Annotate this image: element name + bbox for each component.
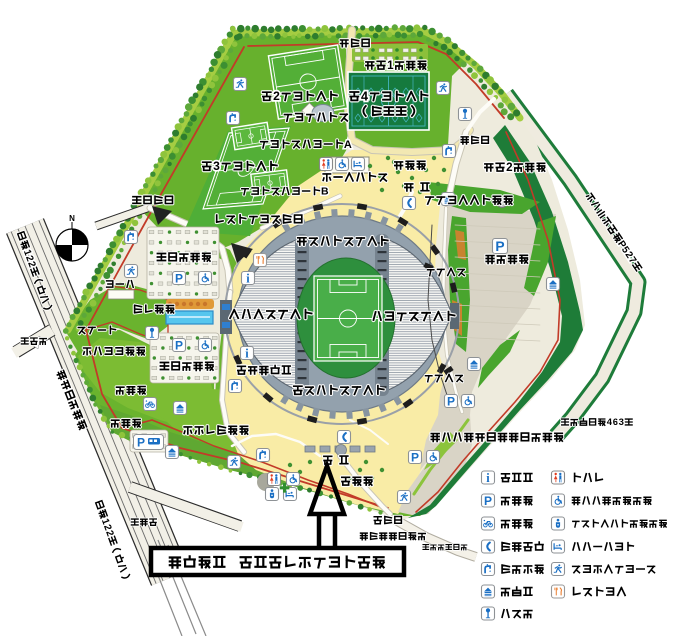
svg-text:i: i	[245, 346, 249, 360]
svg-text:P: P	[447, 394, 455, 408]
svg-text:P: P	[137, 436, 145, 450]
svg-text:i: i	[486, 471, 490, 485]
svg-text:P: P	[175, 338, 183, 352]
svg-text:6: 6	[613, 417, 618, 428]
svg-text:2: 2	[506, 161, 512, 174]
svg-text:1: 1	[387, 59, 394, 72]
svg-text:N: N	[69, 214, 75, 223]
svg-text:P: P	[484, 494, 492, 508]
svg-text:2: 2	[273, 89, 280, 103]
svg-text:P: P	[175, 271, 183, 285]
svg-text:B: B	[321, 186, 329, 198]
svg-text:4: 4	[361, 89, 368, 103]
svg-text:i: i	[246, 271, 250, 285]
svg-text:P: P	[495, 239, 504, 254]
svg-text:P: P	[411, 450, 419, 464]
svg-text:3: 3	[213, 159, 220, 173]
svg-text:A: A	[344, 139, 352, 151]
svg-text:3: 3	[619, 417, 624, 428]
